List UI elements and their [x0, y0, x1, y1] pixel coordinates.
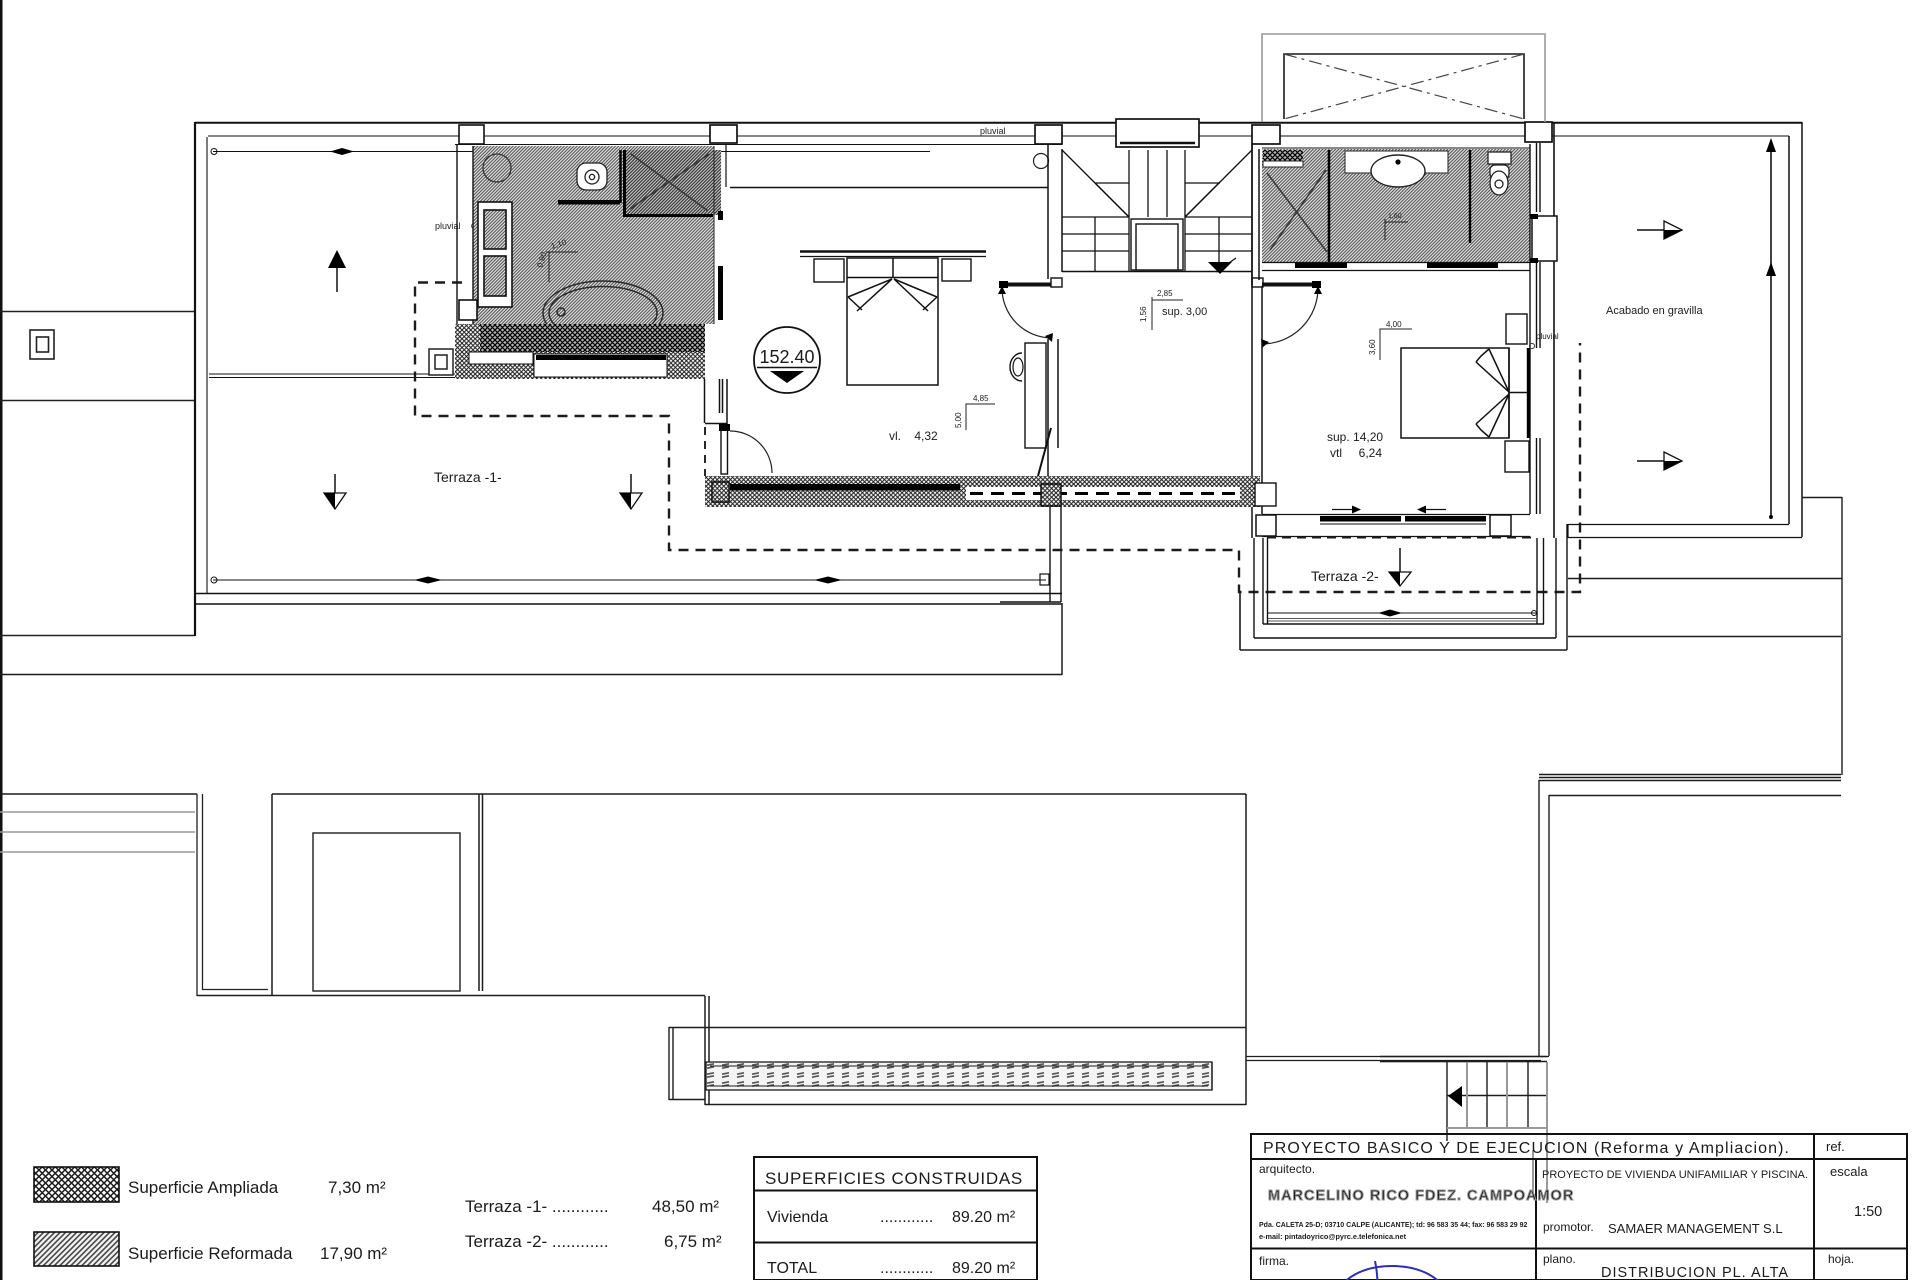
svg-text:Terraza -1- ............: Terraza -1- ............ — [465, 1197, 609, 1216]
svg-text:vtl 6,24: vtl 6,24 — [1330, 446, 1382, 460]
svg-text:vl. 4,32: vl. 4,32 — [889, 429, 938, 443]
svg-text:Superficie Ampliada: Superficie Ampliada — [128, 1178, 279, 1197]
svg-text:DISTRIBUCION PL. ALTA: DISTRIBUCION PL. ALTA — [1601, 1265, 1789, 1280]
svg-text:SAMAER MANAGEMENT S.L: SAMAER MANAGEMENT S.L — [1608, 1221, 1783, 1236]
svg-text:1,60: 1,60 — [1388, 213, 1402, 220]
svg-text:arquitecto.: arquitecto. — [1259, 1162, 1315, 1176]
svg-text:PROYECTO BASICO Y DE EJECUCION: PROYECTO BASICO Y DE EJECUCION (Reforma … — [1263, 1140, 1790, 1157]
svg-text:48,50 m²: 48,50 m² — [652, 1197, 719, 1216]
svg-text:Terraza -1-: Terraza -1- — [434, 469, 502, 485]
svg-text:1:50: 1:50 — [1854, 1204, 1882, 1220]
svg-text:............: ............ — [880, 1209, 933, 1226]
svg-text:Pda. CALETA 25-D; 03710 CALPE: Pda. CALETA 25-D; 03710 CALPE (ALICANTE)… — [1259, 1222, 1528, 1229]
svg-text:TOTAL: TOTAL — [767, 1260, 817, 1277]
svg-text:Acabado en gravilla: Acabado en gravilla — [1606, 305, 1704, 317]
svg-text:4,85: 4,85 — [973, 394, 989, 403]
svg-text:4,00: 4,00 — [1386, 320, 1402, 329]
svg-text:MARCELINO RICO FDEZ. CAMPOAMOR: MARCELINO RICO FDEZ. CAMPOAMOR — [1268, 1188, 1574, 1204]
svg-text:firma.: firma. — [1259, 1254, 1289, 1268]
svg-text:sup. 3,00: sup. 3,00 — [1162, 306, 1207, 318]
svg-text:pluvial: pluvial — [980, 126, 1006, 136]
svg-text:Vivienda: Vivienda — [767, 1209, 828, 1226]
svg-text:Terraza -2-: Terraza -2- — [1311, 568, 1379, 584]
svg-text:152.40: 152.40 — [759, 347, 814, 367]
svg-text:e-mail: pintadoyrico@pyrc.e.te: e-mail: pintadoyrico@pyrc.e.telefonica.n… — [1259, 1232, 1407, 1241]
svg-text:89.20 m²: 89.20 m² — [952, 1209, 1016, 1226]
svg-text:............: ............ — [880, 1260, 933, 1277]
svg-text:5,00: 5,00 — [954, 412, 963, 428]
svg-text:pluvial: pluvial — [1536, 332, 1559, 341]
svg-text:ref.: ref. — [1826, 1139, 1845, 1154]
svg-text:6,75 m²: 6,75 m² — [664, 1232, 722, 1251]
svg-text:7,30 m²: 7,30 m² — [328, 1178, 386, 1197]
svg-text:1,56: 1,56 — [1139, 306, 1148, 322]
svg-text:promotor.: promotor. — [1543, 1220, 1594, 1234]
svg-text:Terraza -2- ............: Terraza -2- ............ — [465, 1232, 609, 1251]
svg-text:Superficie Reformada: Superficie Reformada — [128, 1244, 293, 1263]
svg-text:hoja.: hoja. — [1828, 1252, 1854, 1266]
svg-text:plano.: plano. — [1543, 1252, 1576, 1266]
svg-text:escala: escala — [1830, 1164, 1868, 1179]
svg-text:2,85: 2,85 — [1157, 289, 1173, 298]
svg-text:sup. 14,20: sup. 14,20 — [1327, 430, 1383, 444]
svg-text:PROYECTO DE VIVIENDA UNIFAMILI: PROYECTO DE VIVIENDA UNIFAMILIAR Y PISCI… — [1542, 1169, 1808, 1181]
svg-text:SUPERFICIES CONSTRUIDAS: SUPERFICIES CONSTRUIDAS — [765, 1169, 1023, 1188]
svg-text:17,90 m²: 17,90 m² — [320, 1244, 387, 1263]
svg-text:3,60: 3,60 — [1368, 339, 1377, 355]
svg-text:89.20 m²: 89.20 m² — [952, 1260, 1016, 1277]
